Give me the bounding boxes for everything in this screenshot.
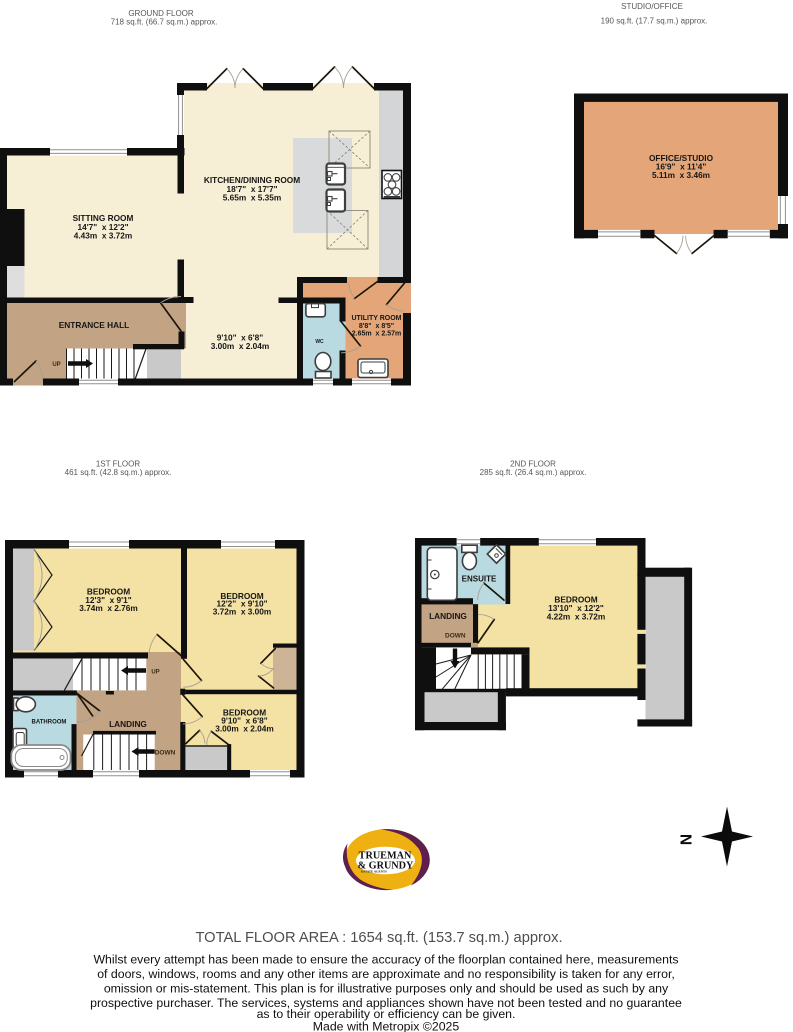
svg-text:8'8" x 8'5": 8'8" x 8'5" — [359, 323, 394, 330]
svg-text:4.22m x 3.72m: 4.22m x 3.72m — [547, 612, 606, 622]
svg-text:omission or mis-statement. Thi: omission or mis-statement. This plan is … — [104, 982, 669, 996]
svg-text:3.72m x 3.00m: 3.72m x 3.00m — [213, 607, 272, 617]
svg-text:Made with Metropix ©2025: Made with Metropix ©2025 — [313, 1020, 460, 1032]
svg-text:4.43m x 3.72m: 4.43m x 3.72m — [74, 231, 133, 241]
svg-text:ESTATE AGENTS: ESTATE AGENTS — [361, 870, 387, 874]
svg-text:ENSUITE: ENSUITE — [462, 575, 497, 584]
svg-text:Whilst every attempt has been: Whilst every attempt has been made to en… — [93, 953, 678, 967]
svg-text:718 sq.ft. (66.7 sq.m.) approx: 718 sq.ft. (66.7 sq.m.) approx. — [111, 18, 218, 27]
svg-text:190 sq.ft. (17.7 sq.m.) approx: 190 sq.ft. (17.7 sq.m.) approx. — [601, 17, 708, 26]
svg-text:BATHROOM: BATHROOM — [32, 720, 67, 726]
svg-text:UP: UP — [52, 362, 60, 368]
svg-text:N: N — [679, 834, 696, 845]
svg-text:STUDIO/OFFICE: STUDIO/OFFICE — [621, 2, 683, 11]
svg-text:ENTRANCE HALL: ENTRANCE HALL — [59, 320, 130, 330]
svg-text:DOWN: DOWN — [155, 750, 176, 757]
svg-text:285 sq.ft. (26.4 sq.m.) approx: 285 sq.ft. (26.4 sq.m.) approx. — [480, 468, 587, 477]
svg-text:TOTAL FLOOR AREA : 1654 sq.ft.: TOTAL FLOOR AREA : 1654 sq.ft. (153.7 sq… — [195, 930, 562, 946]
svg-text:LANDING: LANDING — [109, 719, 147, 729]
svg-text:3.00m x 2.04m: 3.00m x 2.04m — [215, 723, 274, 733]
svg-text:3.00m x 2.04m: 3.00m x 2.04m — [211, 341, 270, 351]
svg-text:UTILITY ROOM: UTILITY ROOM — [351, 315, 401, 322]
svg-text:5.11m x 3.46m: 5.11m x 3.46m — [652, 170, 710, 180]
svg-text:461 sq.ft. (42.8 sq.m.) approx: 461 sq.ft. (42.8 sq.m.) approx. — [65, 468, 172, 477]
svg-text:UP: UP — [151, 670, 159, 676]
svg-text:of doors, windows, rooms and a: of doors, windows, rooms and any other i… — [97, 967, 675, 981]
svg-text:LANDING: LANDING — [429, 611, 467, 621]
svg-text:WC: WC — [315, 339, 324, 345]
svg-text:5.65m x 5.35m: 5.65m x 5.35m — [223, 193, 282, 203]
svg-text:2.65m x 2.57m: 2.65m x 2.57m — [352, 331, 401, 338]
svg-text:3.74m x 2.76m: 3.74m x 2.76m — [79, 603, 138, 613]
svg-text:DOWN: DOWN — [445, 632, 466, 639]
